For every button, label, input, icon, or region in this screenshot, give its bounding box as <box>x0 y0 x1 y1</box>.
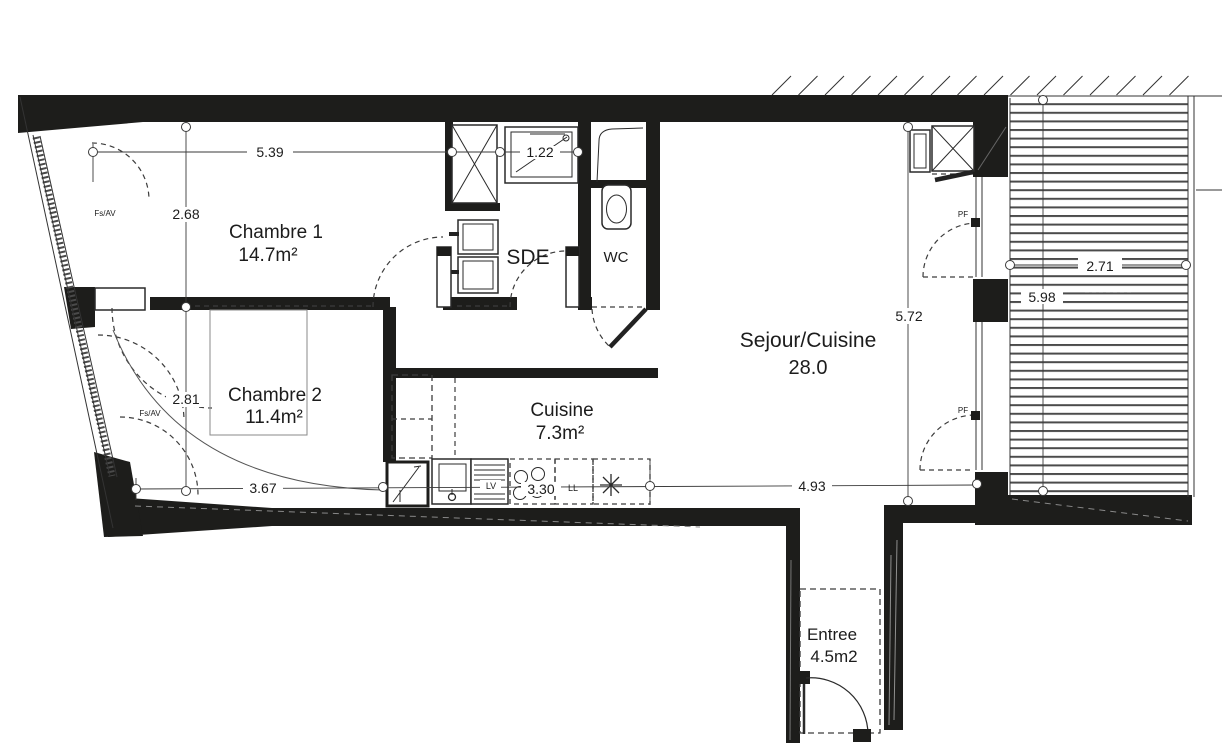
dim-kitchen-width: 3.30 <box>527 481 554 497</box>
closet-ne-leaf <box>935 172 973 180</box>
wall-cuisine-top <box>385 368 658 378</box>
dim-node <box>496 148 505 157</box>
window-swings <box>92 143 383 495</box>
room-area-cuisine: 7.3m² <box>536 423 585 444</box>
duct-niche <box>910 130 930 172</box>
dim-node <box>973 480 982 489</box>
entree-door-arc <box>806 678 868 734</box>
dim-node <box>182 487 191 496</box>
hob-burner-1 <box>515 471 528 484</box>
room-label-chambre2: Chambre 2 <box>228 385 322 406</box>
room-area-entree: 4.5m2 <box>810 647 857 666</box>
wall-sde-shelf-bar <box>445 203 500 211</box>
wall-entree-left <box>786 512 800 743</box>
sink-cabinet <box>432 459 471 504</box>
dim-node <box>1039 487 1048 496</box>
floor-plan-drawing: 5.39 1.22 2.68 2.81 3.67 3.30 4.93 5.72 … <box>0 0 1222 743</box>
tag-fsav-chambre1: Fs/AV <box>94 209 116 218</box>
dim-node <box>132 485 141 494</box>
hob-burner-2 <box>532 468 545 481</box>
dim-shower-width: 1.22 <box>526 144 553 160</box>
dim-ch1-height: 2.68 <box>172 206 199 222</box>
vanity-drawer-top <box>458 220 498 254</box>
room-label-sde: SDE <box>506 246 549 269</box>
hand-basin <box>597 128 643 182</box>
dim-top-width: 5.39 <box>256 144 283 160</box>
wall-wc-east <box>646 122 660 310</box>
room-label-cuisine: Cuisine <box>530 400 593 421</box>
dim-node <box>448 148 457 157</box>
room-area-sejour: 28.0 <box>789 357 828 379</box>
chambre2-door-leaf <box>95 288 145 310</box>
dim-node <box>904 123 913 132</box>
tag-lv: LV <box>486 481 496 491</box>
chambre1-door-arc <box>373 237 443 307</box>
dim-balcony-width: 2.71 <box>1086 258 1113 274</box>
dim-node <box>89 148 98 157</box>
fsav-arc-chambre2 <box>98 335 184 420</box>
pf-door-upper-hinge <box>971 218 980 227</box>
room-area-chambre1: 14.7m² <box>238 245 297 266</box>
wall-sde-south <box>443 297 517 310</box>
entree-door-jamb <box>853 729 871 742</box>
fridge-slot <box>392 375 432 458</box>
doors <box>95 237 646 408</box>
dim-node <box>646 482 655 491</box>
washer-slot <box>555 459 593 504</box>
wc-door-arc <box>592 309 609 346</box>
room-label-chambre1: Chambre 1 <box>229 222 323 243</box>
tag-ll: LL <box>568 483 578 493</box>
tag-pf-lower: PF <box>958 406 968 415</box>
room-labels: Chambre 1 14.7m² Chambre 2 11.4m² SDE WC… <box>228 222 876 666</box>
dim-node <box>1039 96 1048 105</box>
dim-ch2-width: 3.67 <box>249 480 276 496</box>
wc-door-leaf <box>610 309 646 347</box>
dim-node <box>574 148 583 157</box>
star-symbol <box>600 474 622 496</box>
sejour-fixtures <box>910 126 974 180</box>
floor-plan-page: 5.39 1.22 2.68 2.81 3.67 3.30 4.93 5.72 … <box>0 0 1222 743</box>
dim-node <box>904 497 913 506</box>
room-label-sejour: Sejour/Cuisine <box>740 329 877 352</box>
dim-sejour-height: 5.72 <box>895 308 922 324</box>
dim-balcony-height: 5.98 <box>1028 289 1055 305</box>
appliance-slot-star <box>593 459 650 504</box>
duct-box <box>387 462 428 506</box>
vanity-drawer-bottom <box>458 257 498 293</box>
room-area-chambre2: 11.4m² <box>245 407 303 428</box>
dim-node <box>1182 261 1191 270</box>
dim-node <box>182 303 191 312</box>
pf-door-lower-arc <box>920 415 975 470</box>
wall-chambre2-east <box>383 307 396 462</box>
facade-slant-outer <box>20 97 113 528</box>
vanity-handle-top <box>449 232 459 236</box>
pf-door-lower-hinge <box>971 411 980 420</box>
party-wall-hatch <box>772 76 1189 95</box>
dim-ch2-height: 2.81 <box>172 391 199 407</box>
sde-door-handle <box>566 247 579 256</box>
tag-fsav-chambre2: Fs/AV <box>139 409 161 418</box>
wall-sde-south-stub <box>578 297 592 310</box>
dim-node <box>1006 261 1015 270</box>
room-label-entree: Entree <box>807 625 857 644</box>
tag-pf-upper: PF <box>958 210 968 219</box>
chambre1-door-handle <box>437 247 451 256</box>
pf-door-upper-arc <box>923 223 977 277</box>
wall-south <box>265 508 800 526</box>
dim-node <box>379 483 388 492</box>
dim-node <box>182 123 191 132</box>
room-label-wc: WC <box>604 249 629 266</box>
wall-entree-right <box>884 505 903 730</box>
dim-sejour-width: 4.93 <box>798 478 825 494</box>
wall-pier-east <box>973 279 1008 322</box>
